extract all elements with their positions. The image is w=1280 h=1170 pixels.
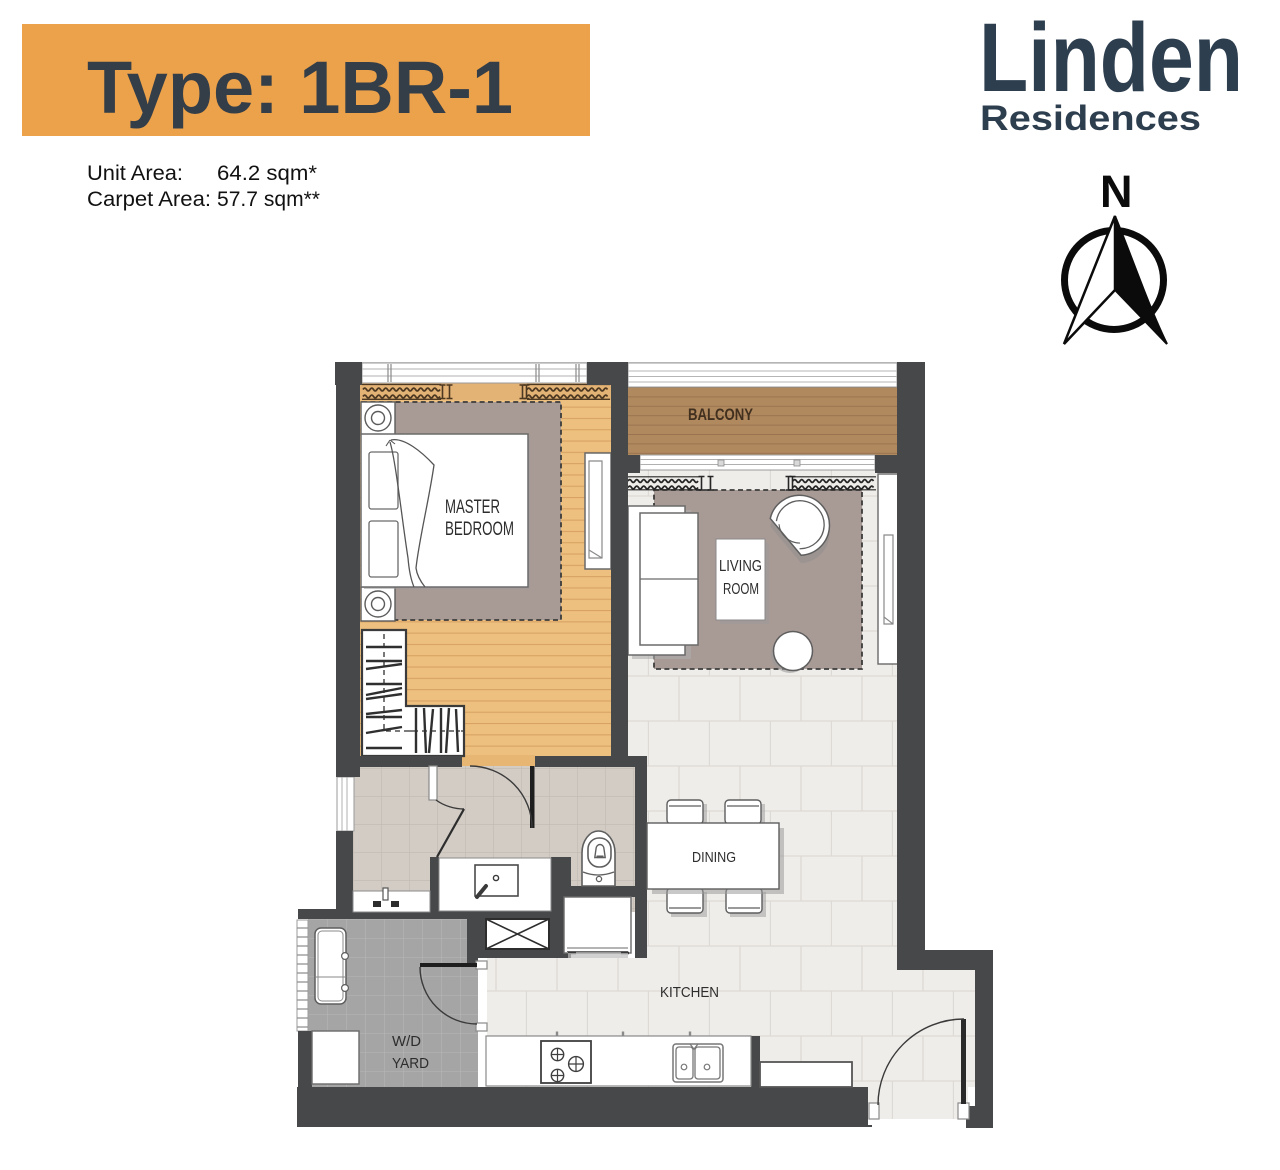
svg-text:Type: 1BR-1: Type: 1BR-1 <box>87 46 513 129</box>
svg-text:KITCHEN: KITCHEN <box>660 984 719 1001</box>
svg-text:LIVING: LIVING <box>719 558 762 575</box>
svg-text:MASTER: MASTER <box>445 497 500 518</box>
svg-text:Carpet Area:: Carpet Area: <box>87 187 211 211</box>
svg-text:YARD: YARD <box>392 1055 429 1072</box>
svg-text:BEDROOM: BEDROOM <box>445 519 514 540</box>
svg-text:Residences: Residences <box>980 99 1201 138</box>
svg-text:64.2 sqm*: 64.2 sqm* <box>217 161 318 185</box>
svg-text:W/D: W/D <box>392 1033 421 1050</box>
svg-text:Unit Area:: Unit Area: <box>87 161 183 185</box>
svg-text:57.7 sqm**: 57.7 sqm** <box>217 187 321 211</box>
svg-text:N: N <box>1100 166 1133 217</box>
svg-text:Linden: Linden <box>979 3 1243 112</box>
svg-text:ROOM: ROOM <box>723 581 759 598</box>
svg-text:BALCONY: BALCONY <box>688 405 754 424</box>
svg-text:DINING: DINING <box>692 849 736 866</box>
